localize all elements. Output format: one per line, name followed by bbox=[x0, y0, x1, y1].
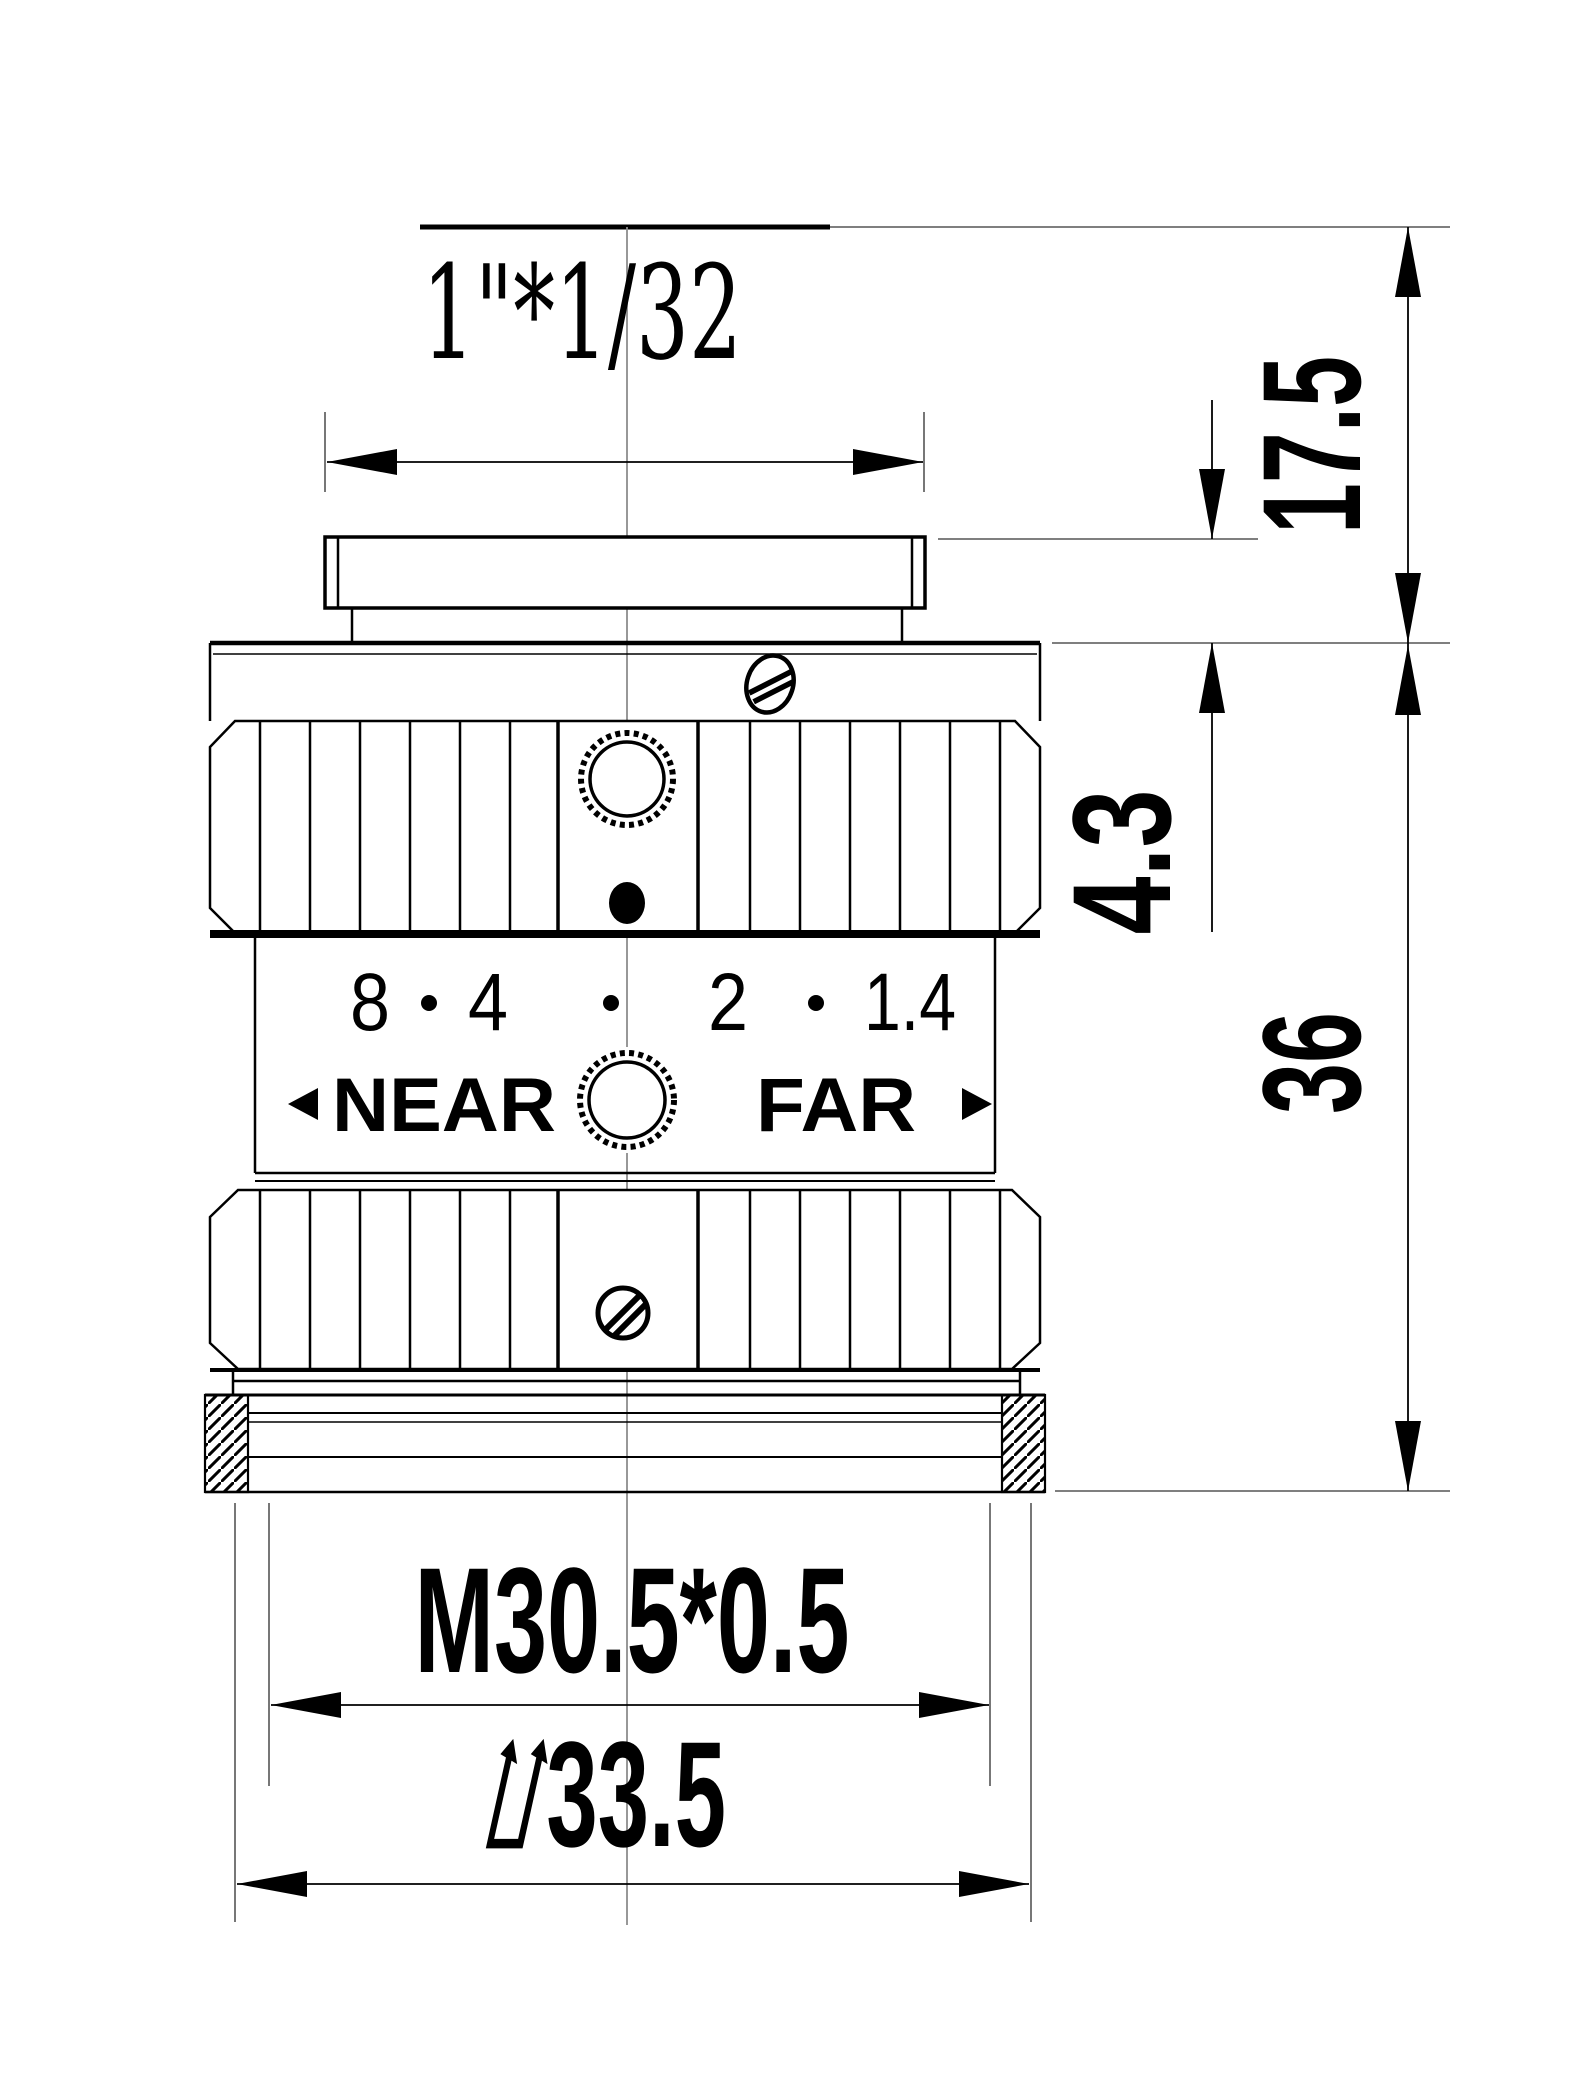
scale-dot-icon bbox=[603, 995, 619, 1011]
focus-ring-outline bbox=[210, 1190, 1040, 1369]
aperture-thumb-knob bbox=[575, 727, 679, 831]
front-diameter-label: ⌰33.5 bbox=[485, 1710, 726, 1878]
aperture-value-8: 8 bbox=[350, 957, 390, 1048]
aperture-value-1-4: 1.4 bbox=[864, 957, 956, 1048]
lens-technical-drawing-page: 1"*1/32 17.5 4.3 36 bbox=[0, 0, 1569, 2097]
far-label: FAR bbox=[756, 1063, 916, 1148]
mount-thread-label: 1"*1/32 bbox=[422, 237, 742, 389]
aperture-knob-inner bbox=[590, 742, 664, 816]
aperture-value-4: 4 bbox=[468, 957, 508, 1048]
aperture-value-2: 2 bbox=[708, 957, 748, 1048]
body-length-label: 36 bbox=[1233, 1012, 1390, 1114]
flange-distance-label: 17.5 bbox=[1233, 356, 1390, 534]
mount-hatch-left bbox=[205, 1395, 248, 1492]
scale-dot-icon bbox=[421, 995, 437, 1011]
focus-knob-inner bbox=[589, 1062, 665, 1138]
mount-hatch-right bbox=[1002, 1395, 1045, 1492]
aperture-index-dot-icon bbox=[609, 882, 645, 924]
near-label: NEAR bbox=[332, 1063, 556, 1148]
focus-thumb-knob bbox=[574, 1047, 680, 1153]
shoulder-height-label: 4.3 bbox=[1043, 790, 1200, 935]
front-thread-label: M30.5*0.5 bbox=[415, 1536, 850, 1704]
scale-dot-icon bbox=[808, 995, 824, 1011]
lens-technical-drawing: 1"*1/32 17.5 4.3 36 bbox=[0, 0, 1569, 2097]
thread-barrel-outline bbox=[325, 537, 925, 608]
focus-set-screw-icon bbox=[598, 1288, 648, 1338]
